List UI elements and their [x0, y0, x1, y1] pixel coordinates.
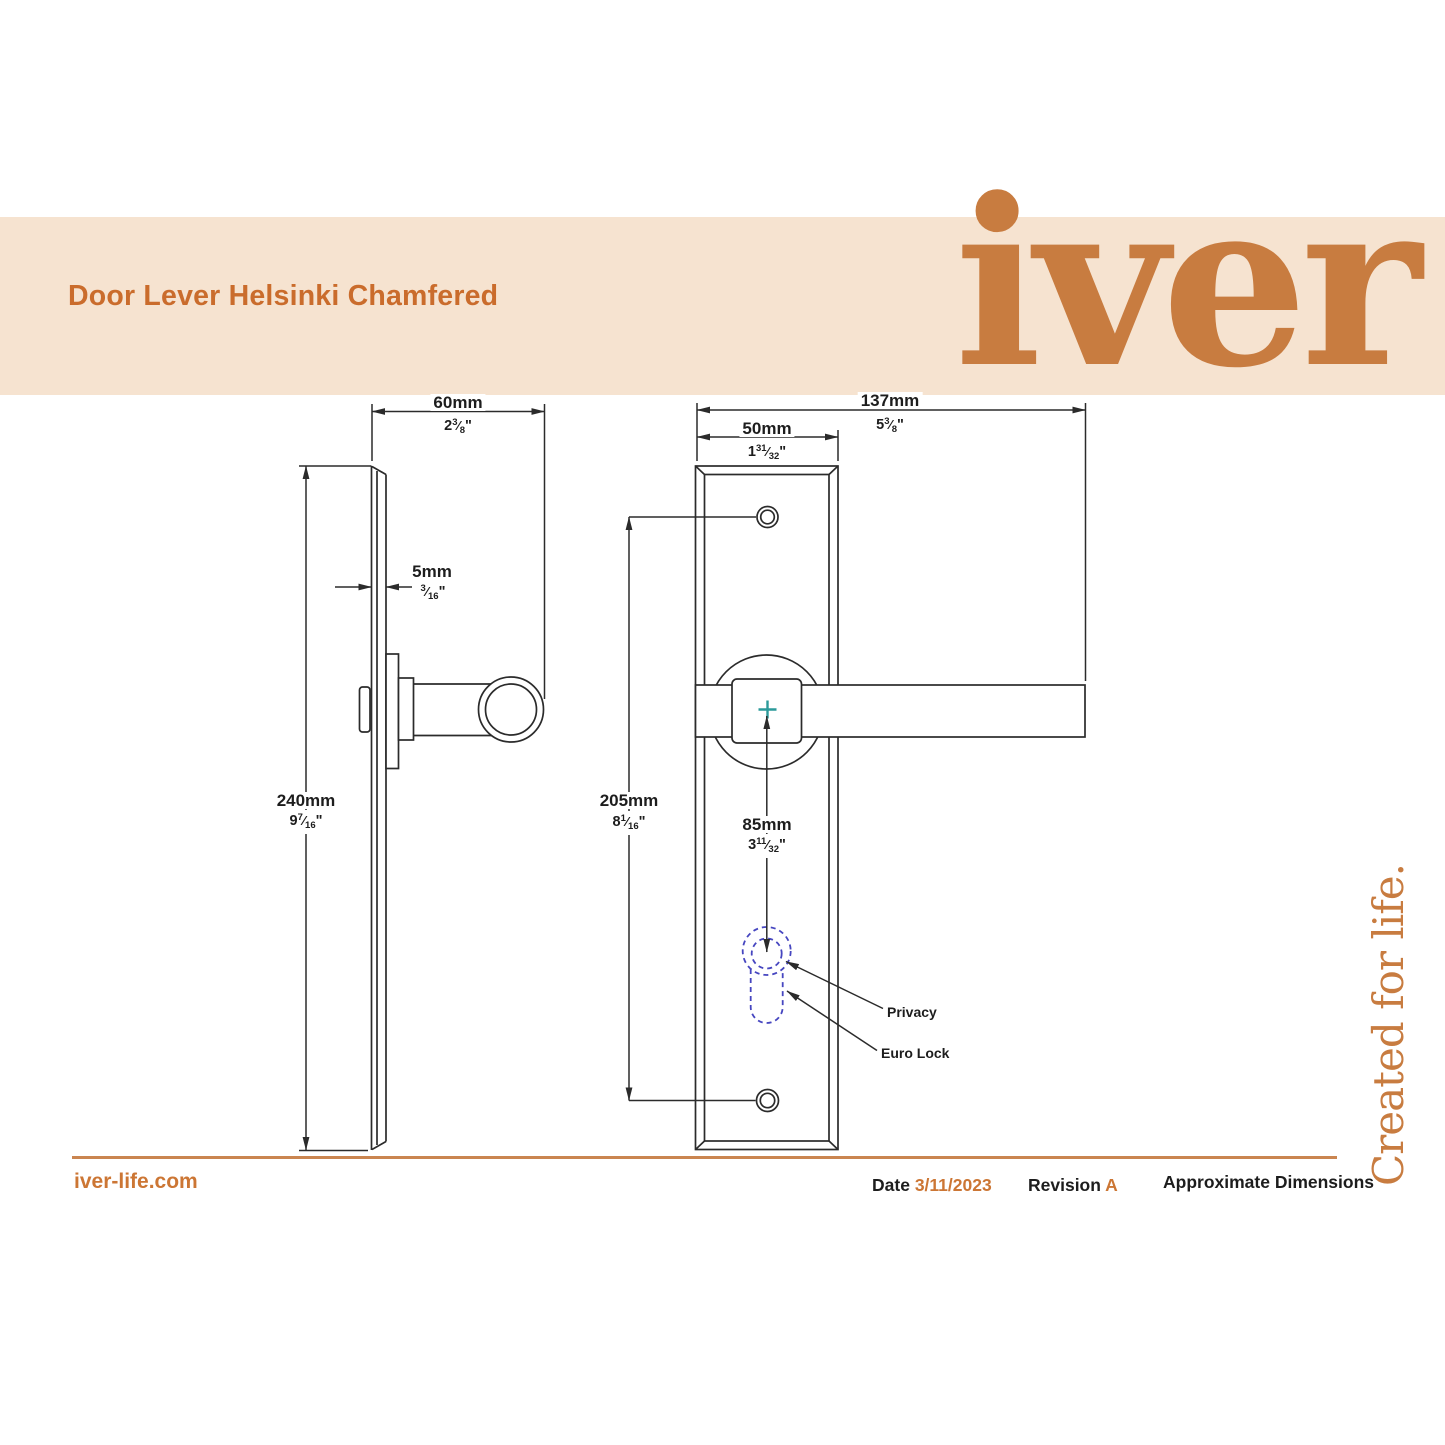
vertical-tagline: Created for life. [1366, 864, 1412, 1186]
dim-137mm-inches: 53⁄8" [874, 414, 906, 438]
footer-date: Date 3/11/2023 [872, 1175, 992, 1196]
backplate-profile [372, 466, 387, 1150]
footer-website-link[interactable]: iver-life.com [74, 1170, 198, 1194]
rose-profile [386, 654, 399, 769]
date-label: Date [872, 1175, 910, 1195]
dim-50mm-inches: 131⁄32" [746, 441, 788, 465]
fixing-lug-profile [360, 687, 371, 732]
callout-euro-lock: Euro Lock [881, 1045, 949, 1061]
dim-240mm-inches: 97⁄16" [288, 810, 325, 834]
revision-label: Revision [1028, 1175, 1101, 1195]
dim-85mm-inches: 311⁄32" [746, 834, 788, 858]
dim-5mm-inches: 3⁄16" [419, 581, 448, 605]
lever-stem-profile [399, 678, 414, 740]
dim-205mm-label: 205mm [597, 792, 662, 809]
revision-value: A [1105, 1175, 1118, 1195]
dim-205mm-inches: 81⁄16" [611, 811, 648, 835]
dim-60mm-inches: 23⁄8" [442, 415, 474, 439]
dimension-lines [299, 403, 1086, 1151]
dim-50mm-label: 50mm [739, 420, 794, 437]
footer-note: Approximate Dimensions [1163, 1172, 1374, 1193]
lever-grip-end-outer [479, 677, 544, 742]
dim-137mm-label: 137mm [858, 392, 923, 409]
dim-5mm-label: 5mm [409, 563, 455, 580]
spec-sheet-page: Door Lever Helsinki Chamfered iver [0, 0, 1445, 1445]
date-value: 3/11/2023 [915, 1175, 992, 1195]
callout-privacy: Privacy [887, 1004, 937, 1020]
footer-rule [72, 1156, 1337, 1159]
dim-240mm-label: 240mm [274, 792, 339, 809]
dim-60mm-label: 60mm [430, 394, 485, 411]
footer-revision: Revision A [1028, 1175, 1118, 1196]
technical-drawing [0, 0, 1445, 1445]
dim-85mm-label: 85mm [739, 816, 794, 833]
